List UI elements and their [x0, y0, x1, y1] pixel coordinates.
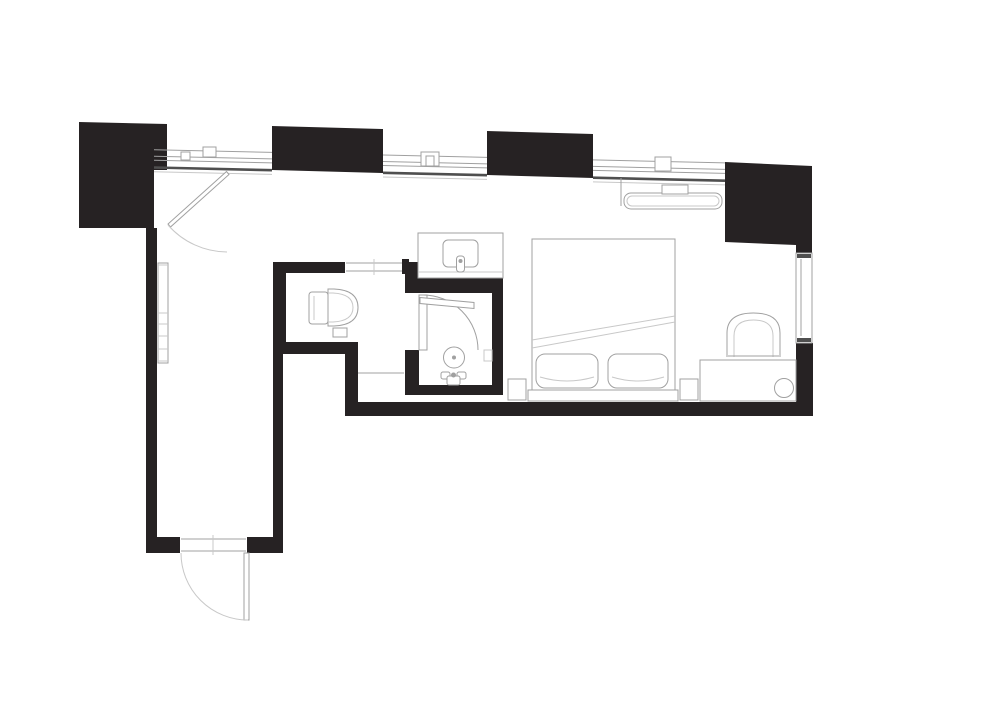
right-wall-lower: [796, 343, 813, 416]
headboard: [528, 390, 678, 401]
pier-3: [487, 131, 593, 178]
bed-outline: [532, 239, 675, 390]
desk-stool: [775, 379, 794, 398]
bottom-door-leaf: [244, 553, 249, 620]
pier-4: [725, 162, 812, 253]
shower-drain-dot: [452, 356, 456, 360]
double-bed: [528, 239, 678, 401]
floor-plan-canvas: [0, 0, 1000, 707]
shower-right-wall: [492, 278, 503, 395]
vanity-faucet-knob: [459, 259, 463, 263]
vanity: [418, 233, 503, 278]
lounge-chair: [727, 313, 780, 357]
vanity-wall-band: [405, 278, 503, 293]
wc-top-wall: [273, 262, 345, 273]
window-hardware-box: [655, 157, 671, 171]
nook-left-wall: [345, 353, 358, 410]
pier-1: [79, 122, 167, 228]
right-side-window: [796, 253, 812, 343]
wall-mirror: [158, 263, 168, 363]
main-bottom-wall: [345, 402, 813, 416]
pier-2: [272, 126, 383, 173]
window-hardware-box-inner: [426, 156, 434, 166]
nightstand-right: [680, 379, 698, 400]
entry-bottom-wall-left: [146, 537, 180, 553]
vanity-faucet: [457, 256, 465, 272]
left-wall: [146, 228, 157, 553]
desk-console: [700, 360, 796, 401]
nightstand-left: [508, 379, 526, 400]
corridor-right-wall: [273, 353, 283, 553]
shower-bottom-wall: [405, 385, 503, 395]
wc-bottom-wall: [273, 342, 358, 354]
shower-valve-knob: [451, 373, 456, 378]
wc-left-wall: [273, 262, 286, 354]
toilet: [309, 289, 358, 326]
window-hardware-box: [203, 147, 216, 157]
toilet-cistern: [309, 292, 328, 324]
window-hardware-box: [181, 152, 190, 160]
